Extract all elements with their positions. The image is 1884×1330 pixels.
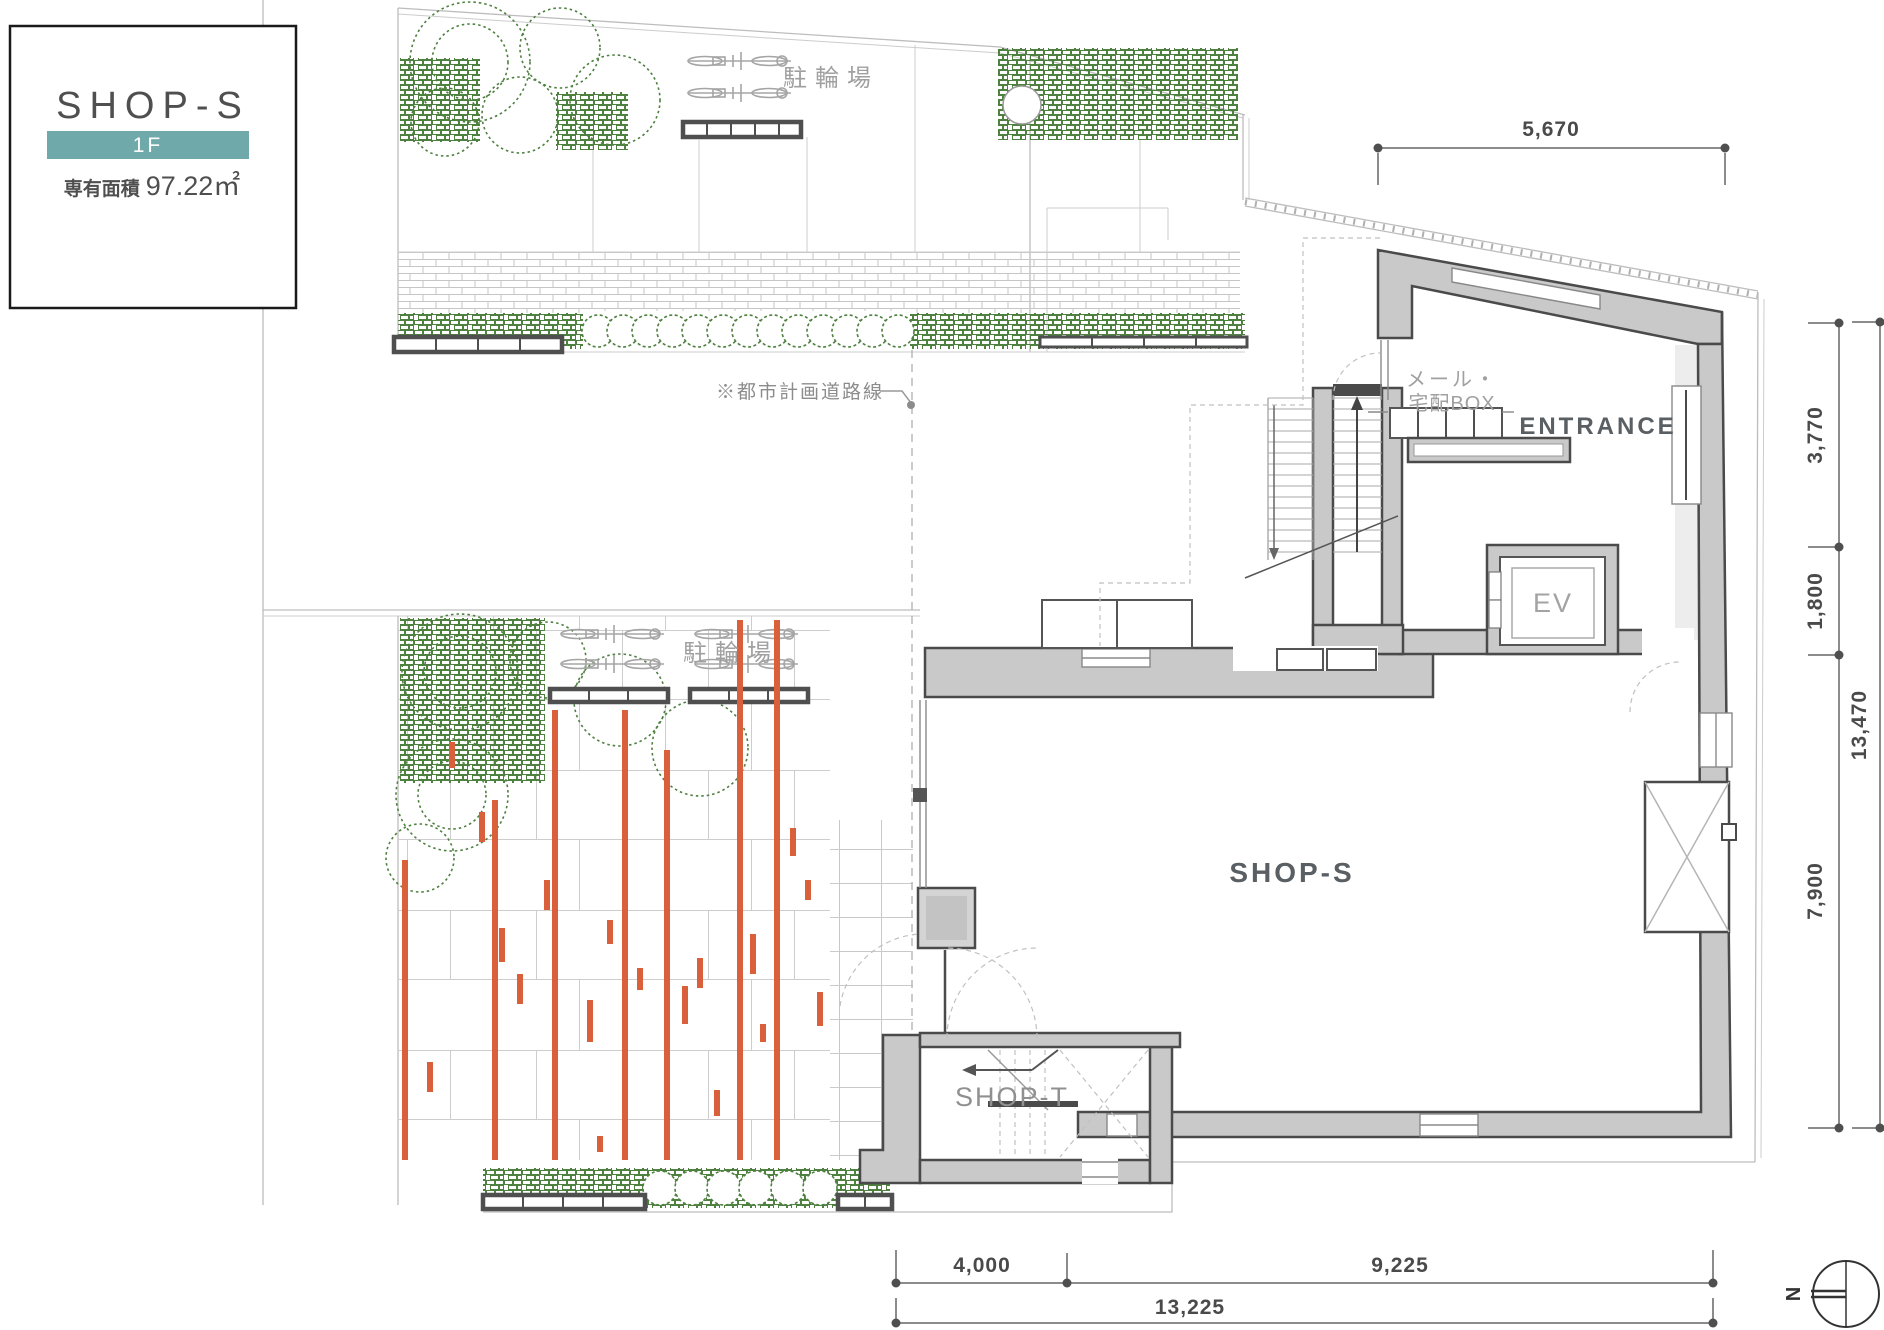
shop-t-room-label: SHOP-T xyxy=(955,1082,1069,1112)
dimension-top: 5,670 xyxy=(1374,118,1730,185)
hedge-row xyxy=(582,315,914,347)
mailbox-label-line2: 宅配BOX xyxy=(1408,392,1495,415)
planting-hatch-lower xyxy=(400,618,545,783)
mailbox-label-line1: メール・ xyxy=(1406,369,1498,391)
dimension-bottom: 4,000 9,225 13,225 xyxy=(892,1250,1718,1328)
card-border xyxy=(10,26,296,308)
bottom-garden-strip xyxy=(483,1168,892,1209)
building-walls xyxy=(860,250,1731,1183)
bike-rack-bar-top xyxy=(683,122,801,137)
bottom-wall-window-1 xyxy=(1420,1114,1478,1136)
mailbox-corner-cutout xyxy=(1233,646,1378,671)
bottom-wall-window-2 xyxy=(1107,1114,1137,1136)
bicycle-parking-label-top: 駐輪場 xyxy=(783,65,879,92)
stair-down-arrow-icon xyxy=(1269,548,1279,560)
shop-t-door xyxy=(1082,1155,1118,1184)
entrance-door xyxy=(1672,386,1701,504)
dim-right-lower: 7,900 xyxy=(1804,862,1827,920)
entrance-label: ENTRANCE xyxy=(1519,413,1676,440)
west-storefront-glass xyxy=(913,700,945,1033)
corridor-door-gap xyxy=(1642,628,1694,656)
area-value: 97.22㎡ xyxy=(146,171,241,201)
floor-badge-label: 1F xyxy=(133,134,164,157)
dim-top-value: 5,670 xyxy=(1522,118,1580,141)
floor-plan-canvas: 5,670 3,770 1,800 7,900 13,470 4,000 9,2… xyxy=(0,0,1884,1330)
dim-right-upper: 3,770 xyxy=(1804,406,1827,464)
card-title: SHOP-S xyxy=(56,85,250,127)
planned-road-label: ※都市計画道路線 xyxy=(716,381,884,403)
dim-bottom-total: 13,225 xyxy=(1155,1296,1225,1319)
shop-s-room-label: SHOP-S xyxy=(1229,857,1354,888)
dim-right-middle: 1,800 xyxy=(1804,572,1827,630)
bicycle-parking-label-lower: 駐輪場 xyxy=(683,640,779,667)
dimension-right-outer: 13,470 xyxy=(1848,318,1884,1133)
entry-bench xyxy=(1408,438,1570,462)
storage-cells xyxy=(1042,600,1192,648)
dim-bottom-right: 9,225 xyxy=(1371,1254,1429,1277)
elevator-label: EV xyxy=(1533,588,1573,618)
shop-t-stair-arrow-icon xyxy=(962,1064,976,1076)
shaft-x-box xyxy=(1645,782,1736,932)
dimension-right-inner: 3,770 1,800 7,900 xyxy=(1804,319,1844,1133)
dim-right-total: 13,470 xyxy=(1848,690,1871,760)
planting-hatch-top xyxy=(400,48,1238,150)
bicycle-icons-top xyxy=(688,52,791,102)
north-compass-icon: N xyxy=(1783,1261,1879,1327)
right-wall-window xyxy=(1700,713,1732,767)
tree-circle-icon xyxy=(1003,86,1041,124)
north-label: N xyxy=(1783,1287,1805,1301)
shop-s-north-window xyxy=(1082,649,1150,667)
unit-info-card: SHOP-S 1F 専有面積97.22㎡ xyxy=(10,26,296,308)
dim-bottom-left: 4,000 xyxy=(953,1254,1011,1277)
area-label: 専有面積 xyxy=(64,177,140,200)
